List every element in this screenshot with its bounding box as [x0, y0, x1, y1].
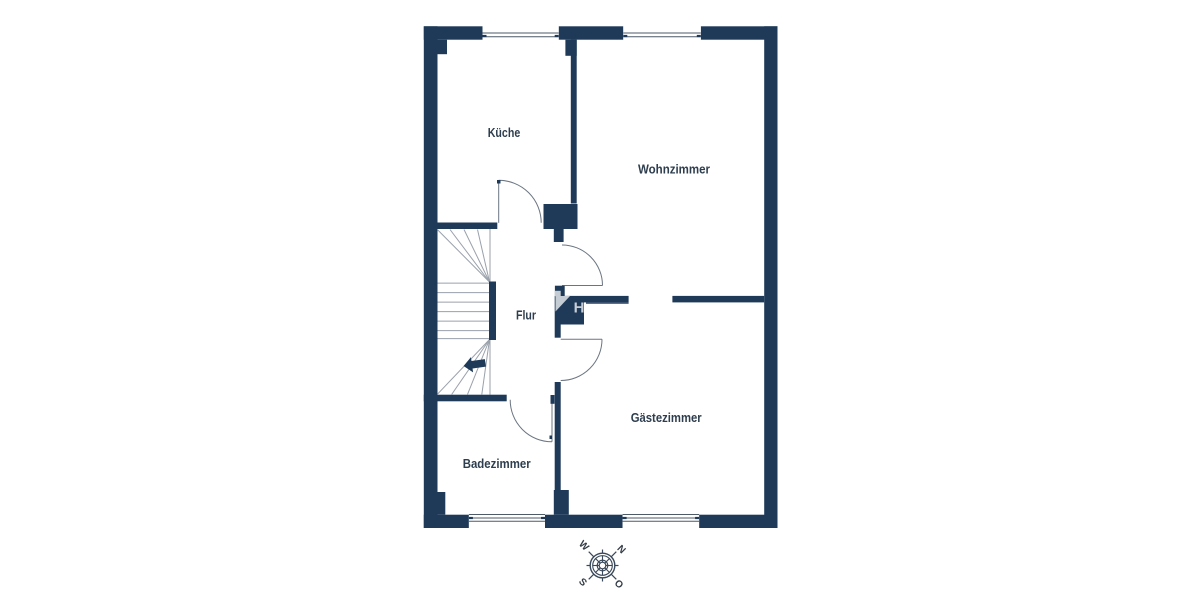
svg-text:H: H	[574, 299, 585, 316]
svg-text:Gästezimmer: Gästezimmer	[631, 410, 702, 425]
svg-text:Badezimmer: Badezimmer	[463, 456, 531, 471]
svg-text:Wohnzimmer: Wohnzimmer	[638, 162, 710, 177]
svg-text:Küche: Küche	[488, 125, 521, 140]
svg-text:Flur: Flur	[516, 307, 536, 322]
